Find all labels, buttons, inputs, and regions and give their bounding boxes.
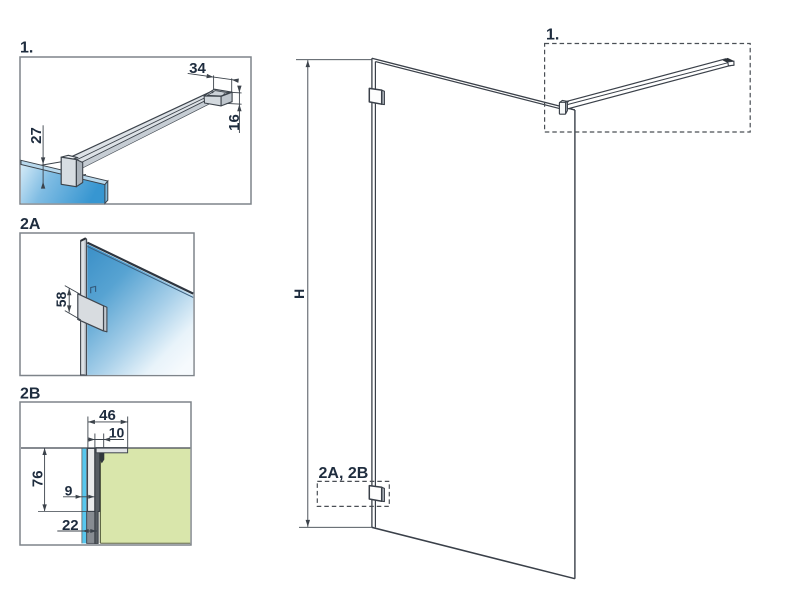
svg-text:16: 16 [226,114,243,131]
svg-text:2A: 2A [20,216,41,233]
svg-text:10: 10 [109,425,125,441]
svg-text:2A, 2B: 2A, 2B [319,465,369,482]
svg-text:22: 22 [62,517,79,534]
svg-text:58: 58 [53,292,69,308]
svg-text:46: 46 [99,407,116,424]
svg-text:76: 76 [30,470,47,487]
svg-text:27: 27 [28,127,45,144]
svg-text:H: H [291,289,307,299]
svg-text:34: 34 [189,60,206,77]
svg-text:1.: 1. [546,27,559,44]
svg-text:1.: 1. [20,40,33,57]
svg-text:9: 9 [65,482,73,498]
svg-text:2B: 2B [20,386,40,403]
